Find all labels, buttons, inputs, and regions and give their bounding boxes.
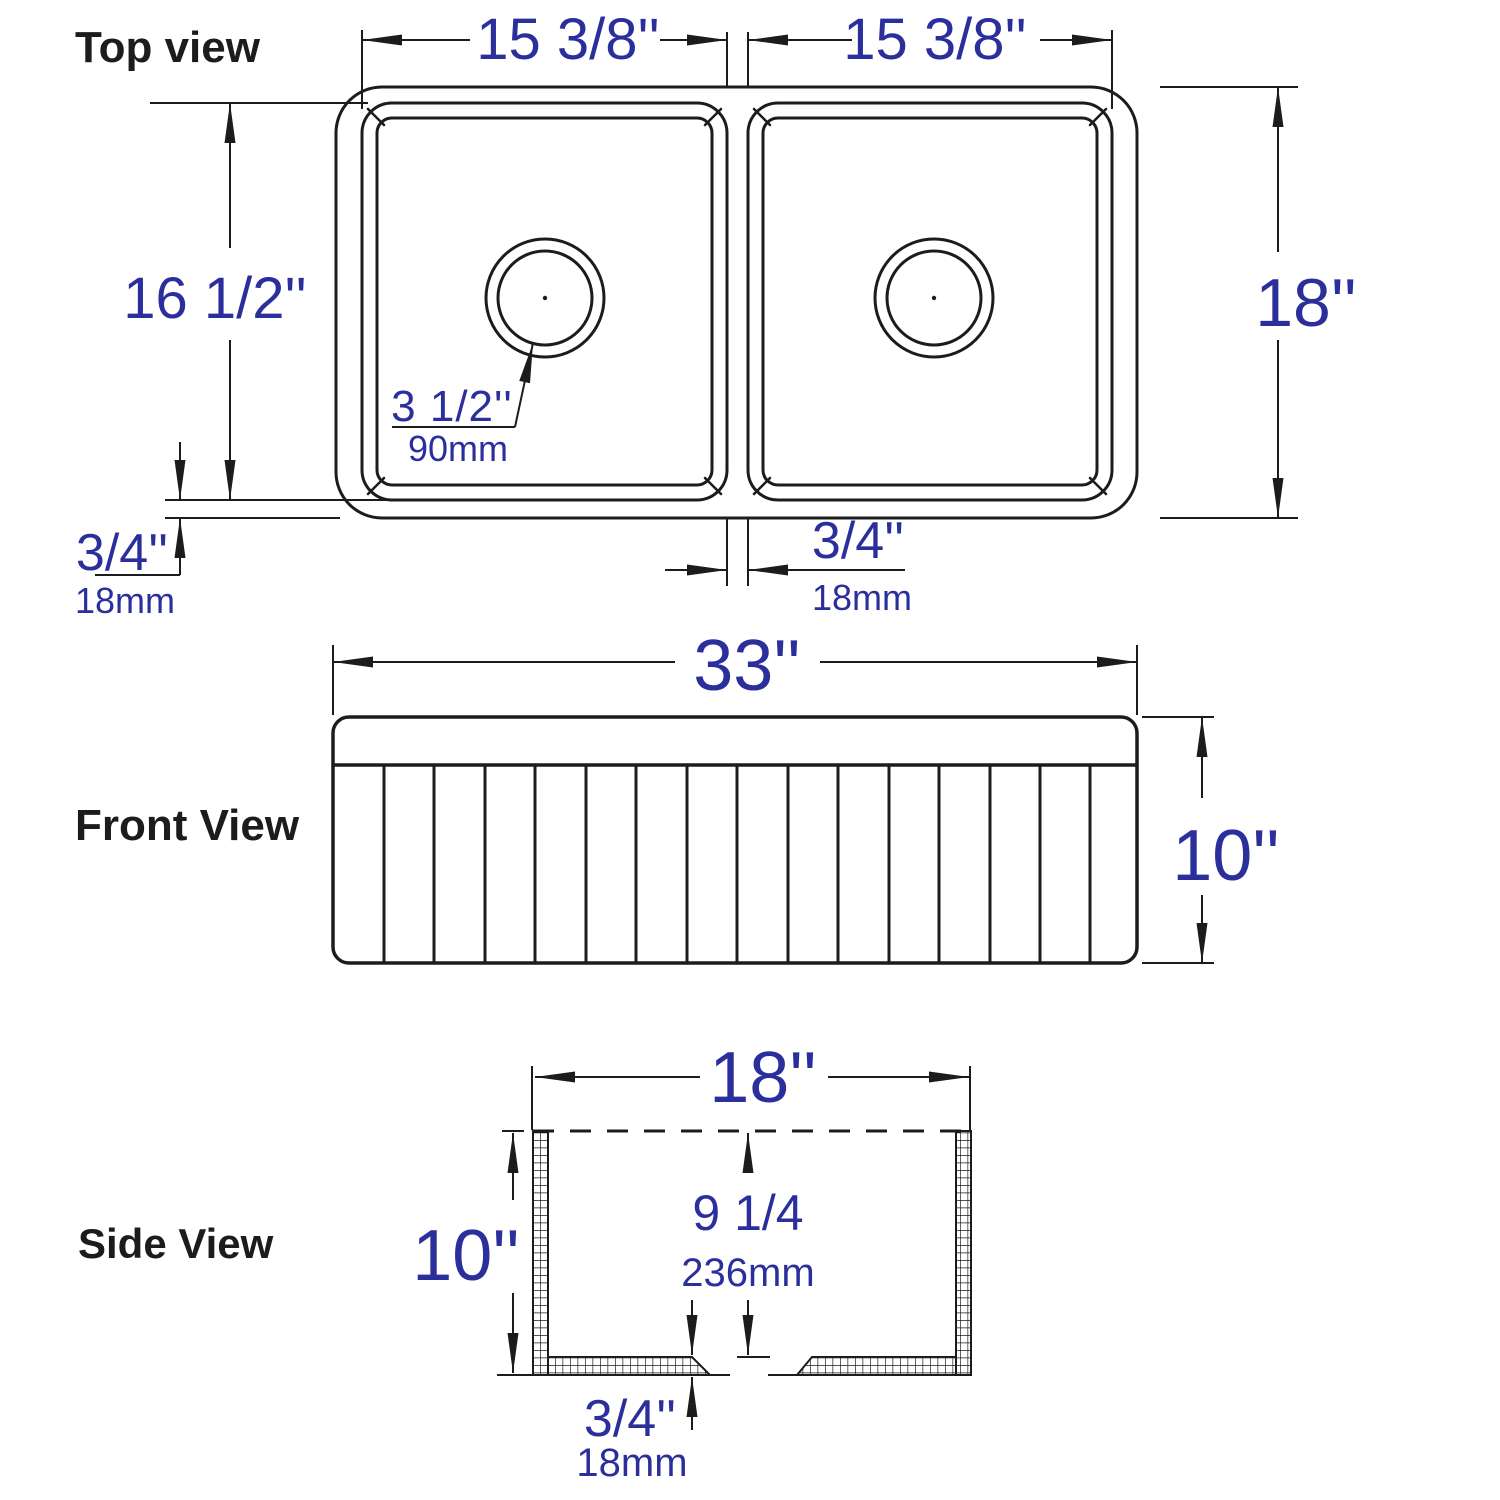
front-view-label: Front View [75,801,300,850]
right-bowl-rim-outer [748,103,1112,500]
drain-leader-line [515,343,533,427]
right-bowl-rim-inner [763,118,1097,485]
top-view-drain-centers [543,296,936,300]
top-view-label: Top view [75,23,261,72]
dim-right-bowl-width: 15 3/8'' [843,7,1026,72]
dim-overall-depth: 18'' [1255,265,1357,341]
left-drain-center-mark [543,296,547,300]
side-bottom-left-section [548,1357,710,1375]
dim-inner-depth: 9 1/4 [692,1185,803,1241]
dim-base-thickness-mm: 18mm [576,1441,687,1485]
front-view-linework [333,717,1137,963]
side-right-wall-section [956,1131,971,1375]
dim-side-depth: 18'' [709,1038,817,1118]
side-left-wall-section [533,1131,548,1375]
side-view-label: Side View [78,1220,274,1267]
dim-divider-thickness: 3/4'' [812,512,904,570]
top-view: Top view 15 3/8'' 15 3/8'' 18'' 16 1/2''… [75,7,1357,621]
dim-drain-diameter: 3 1/2'' [391,382,513,431]
dim-apron-height: 10'' [1172,816,1280,896]
dim-overall-width: 33'' [693,626,801,706]
dim-side-height: 10'' [412,1216,520,1296]
right-drain-center-mark [932,296,936,300]
bottom-outline-extensions [710,1357,797,1375]
dim-bowl-depth: 16 1/2'' [123,266,306,331]
front-apron-outline [333,717,1137,963]
sink-technical-diagram: Top view 15 3/8'' 15 3/8'' 18'' 16 1/2''… [0,0,1500,1500]
top-view-dimension-labels: 15 3/8'' 15 3/8'' 18'' 16 1/2'' 3 1/2'' … [75,7,1357,621]
front-view-dimension-labels: 33'' 10'' [693,626,1280,896]
front-view: Front View 33'' 10'' [75,626,1280,963]
dim-rim-thickness-mm: 18mm [75,580,175,621]
side-view: Side View 18'' 10'' 9 1/4 236mm 3/4'' 18… [78,1038,971,1485]
dim-base-thickness: 3/4'' [584,1390,676,1448]
dim-rim-thickness: 3/4'' [76,524,168,582]
apron-flute-lines [384,765,1090,962]
dim-left-bowl-width: 15 3/8'' [476,7,659,72]
side-bottom-right-section [797,1357,956,1375]
dim-drain-diameter-mm: 90mm [408,428,508,469]
dim-divider-thickness-mm: 18mm [812,577,912,618]
sink-dimension-drawing-page: Top view 15 3/8'' 15 3/8'' 18'' 16 1/2''… [0,0,1500,1500]
side-view-dimension-labels: 18'' 10'' 9 1/4 236mm 3/4'' 18mm [412,1038,817,1485]
dim-inner-depth-mm: 236mm [681,1251,814,1295]
